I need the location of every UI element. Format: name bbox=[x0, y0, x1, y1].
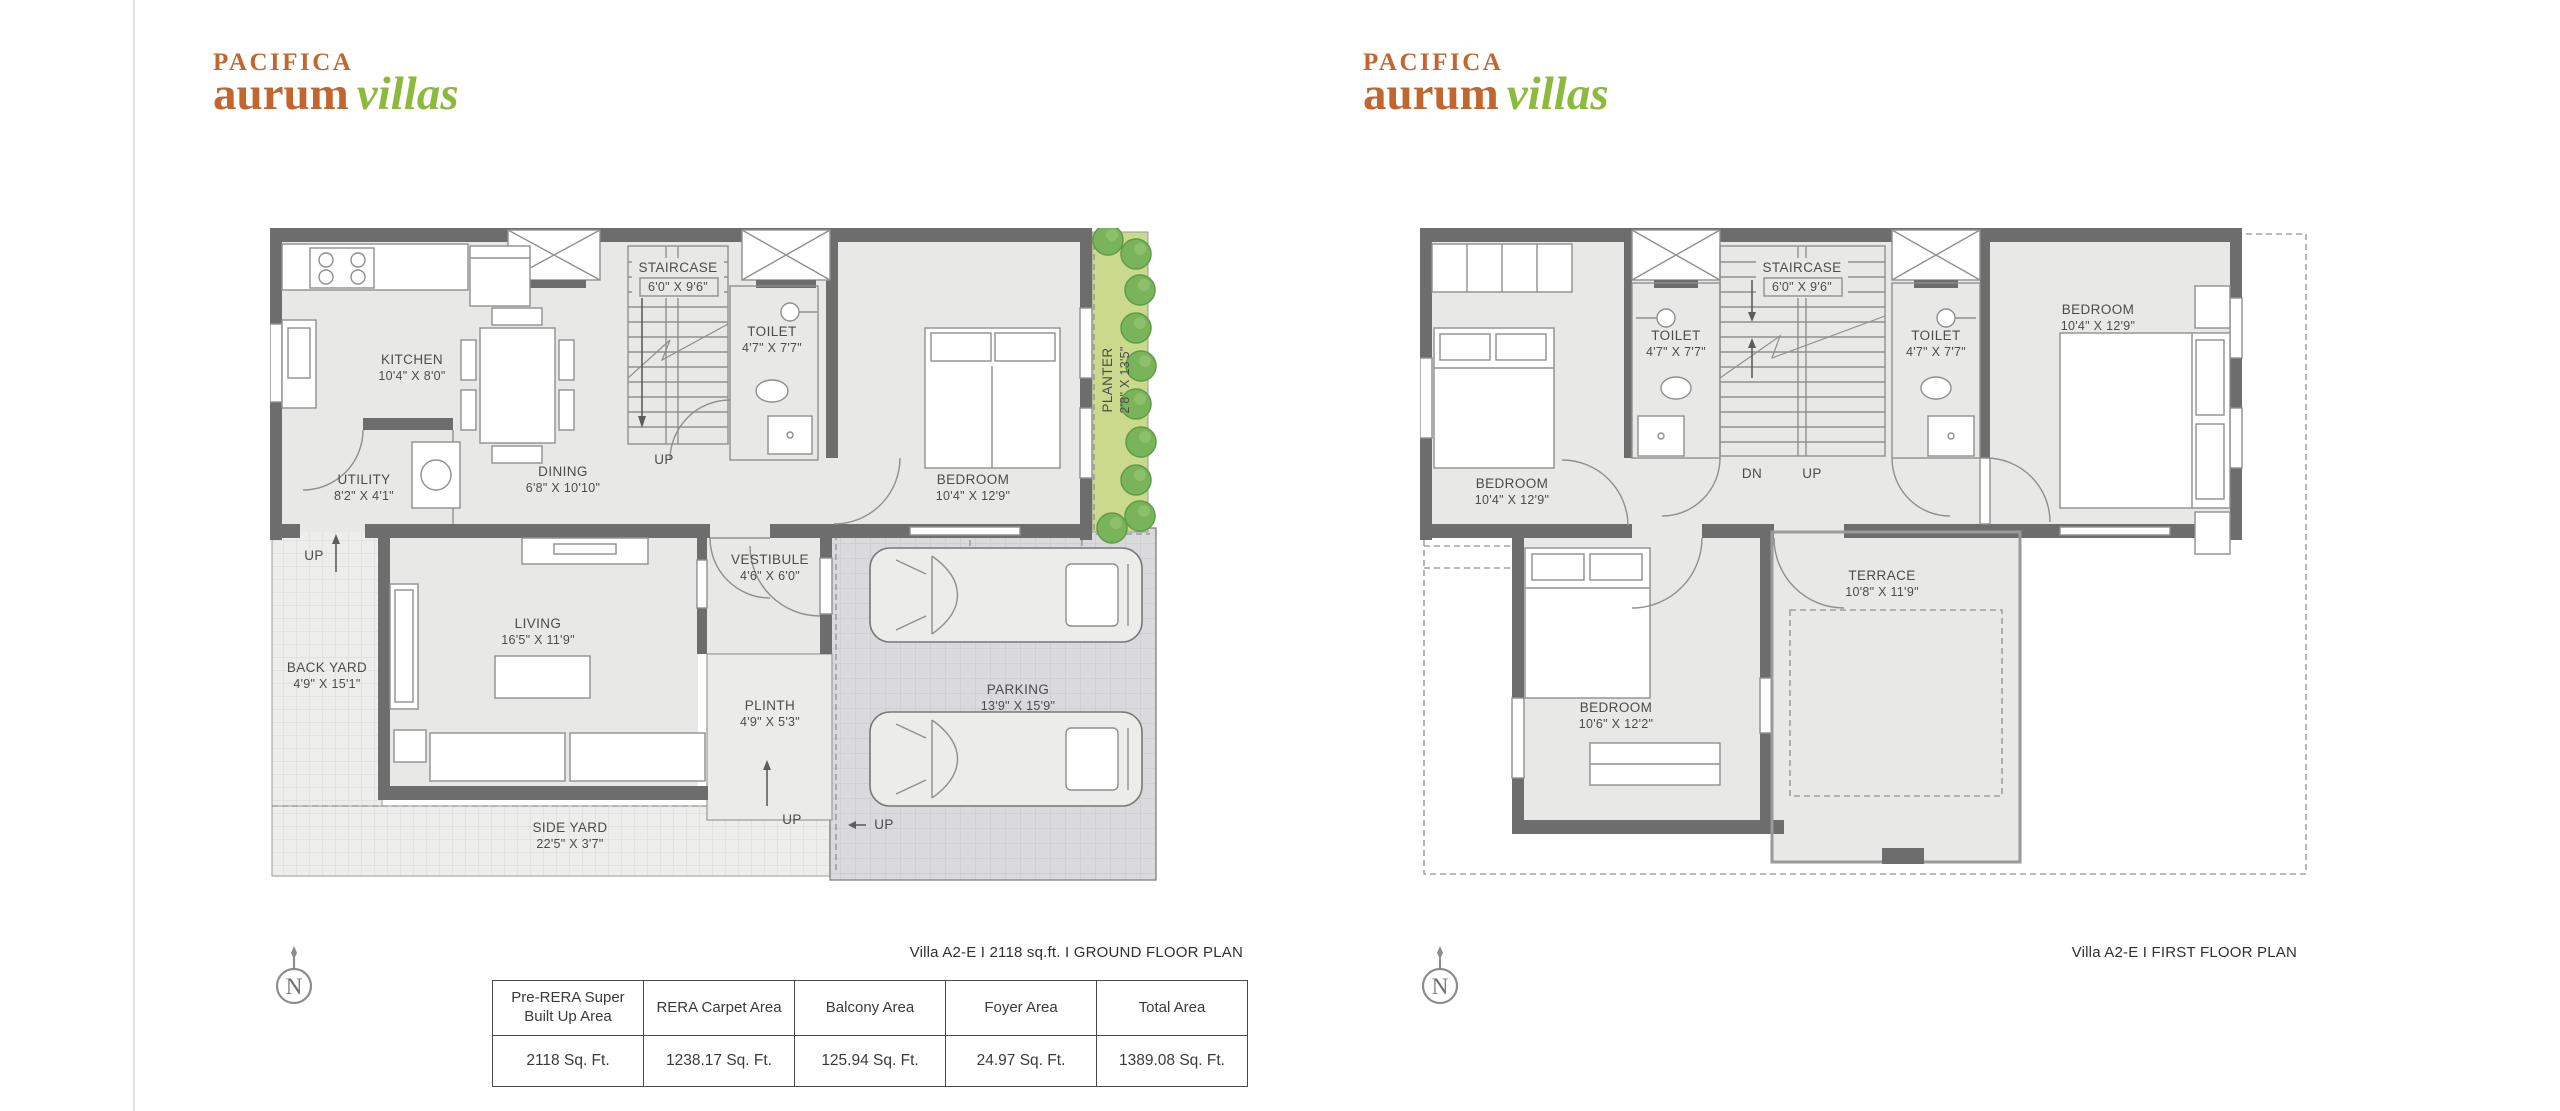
svg-text:6'0" X 9'6": 6'0" X 9'6" bbox=[1772, 280, 1832, 294]
room-label-staircase: STAIRCASE 6'0" X 9'6" bbox=[632, 258, 724, 298]
north-compass-icon: N bbox=[1412, 946, 1468, 1012]
svg-text:BACK YARD: BACK YARD bbox=[287, 660, 367, 675]
svg-text:TERRACE: TERRACE bbox=[1848, 568, 1915, 583]
brand-logo: PACIFICA aurumvillas bbox=[1363, 50, 1609, 118]
table-header-cell: Foyer Area bbox=[946, 981, 1097, 1036]
svg-text:6'0" X 9'6": 6'0" X 9'6" bbox=[648, 280, 708, 294]
svg-text:KITCHEN: KITCHEN bbox=[381, 352, 443, 367]
svg-text:VESTIBULE: VESTIBULE bbox=[731, 552, 809, 567]
svg-text:TOILET: TOILET bbox=[1651, 328, 1700, 343]
brand-logo: PACIFICA aurumvillas bbox=[213, 50, 459, 118]
svg-text:16'5" X 11'9": 16'5" X 11'9" bbox=[501, 633, 575, 647]
svg-text:PLANTER: PLANTER bbox=[1100, 347, 1115, 412]
stair-dn-label: DN bbox=[1742, 466, 1762, 481]
entry-up-label: UP bbox=[874, 817, 894, 832]
brand-word-main: aurum bbox=[1363, 68, 1499, 120]
table-value-cell: 125.94 Sq. Ft. bbox=[795, 1036, 946, 1087]
brand-wordmark: aurumvillas bbox=[1363, 71, 1609, 118]
plinth-up-label: UP bbox=[782, 812, 802, 827]
svg-text:BEDROOM: BEDROOM bbox=[1580, 700, 1653, 715]
brand-wordmark: aurumvillas bbox=[213, 71, 459, 118]
brand-word-main: aurum bbox=[213, 68, 349, 120]
svg-text:LIVING: LIVING bbox=[515, 616, 562, 631]
brochure-page: PACIFICA aurumvillas bbox=[0, 0, 2560, 1111]
stair-up-label: UP bbox=[1802, 466, 1822, 481]
svg-text:22'5" X 3'7": 22'5" X 3'7" bbox=[536, 837, 603, 851]
svg-text:10'4" X 12'9": 10'4" X 12'9" bbox=[936, 489, 1011, 503]
svg-text:BEDROOM: BEDROOM bbox=[937, 472, 1010, 487]
svg-text:N: N bbox=[286, 974, 303, 999]
svg-text:SIDE YARD: SIDE YARD bbox=[532, 820, 607, 835]
table-header-cell: RERA Carpet Area bbox=[644, 981, 795, 1036]
svg-text:10'8" X 11'9": 10'8" X 11'9" bbox=[1845, 585, 1919, 599]
table-header-cell: Total Area bbox=[1097, 981, 1248, 1036]
svg-text:DINING: DINING bbox=[538, 464, 588, 479]
svg-text:10'4" X 12'9": 10'4" X 12'9" bbox=[1475, 493, 1550, 507]
svg-text:13'9" X 15'9": 13'9" X 15'9" bbox=[981, 699, 1056, 713]
svg-text:PLINTH: PLINTH bbox=[745, 698, 795, 713]
area-table: Pre-RERA Super Built Up Area RERA Carpet… bbox=[492, 980, 1248, 1087]
svg-text:BEDROOM: BEDROOM bbox=[1476, 476, 1549, 491]
svg-text:10'4" X 8'0": 10'4" X 8'0" bbox=[378, 369, 445, 383]
table-value-cell: 2118 Sq. Ft. bbox=[493, 1036, 644, 1087]
svg-text:PARKING: PARKING bbox=[987, 682, 1050, 697]
table-value-cell: 1238.17 Sq. Ft. bbox=[644, 1036, 795, 1087]
first-floor-caption: Villa A2-E I FIRST FLOOR PLAN bbox=[1777, 944, 2297, 961]
north-compass-icon: N bbox=[266, 946, 322, 1012]
svg-text:2'8" X 13'5": 2'8" X 13'5" bbox=[1118, 346, 1132, 413]
table-value-cell: 1389.08 Sq. Ft. bbox=[1097, 1036, 1248, 1087]
svg-text:UTILITY: UTILITY bbox=[337, 472, 390, 487]
backyard-up-label: UP bbox=[304, 548, 324, 563]
plinth-slab bbox=[707, 654, 832, 820]
vestibule-slab bbox=[697, 532, 832, 654]
brand-word-accent: villas bbox=[357, 68, 459, 120]
svg-text:4'7" X 7'7": 4'7" X 7'7" bbox=[1646, 345, 1706, 359]
svg-text:STAIRCASE: STAIRCASE bbox=[638, 260, 717, 275]
table-header-cell: Balcony Area bbox=[795, 981, 946, 1036]
table-value-cell: 24.97 Sq. Ft. bbox=[946, 1036, 1097, 1087]
svg-text:10'4" X 12'9": 10'4" X 12'9" bbox=[2061, 319, 2136, 333]
svg-text:6'8" X 10'10": 6'8" X 10'10" bbox=[526, 481, 601, 495]
svg-text:4'7" X 7'7": 4'7" X 7'7" bbox=[1906, 345, 1966, 359]
svg-text:8'2" X 4'1": 8'2" X 4'1" bbox=[334, 489, 394, 503]
room-label-staircase: STAIRCASE 6'0" X 9'6" bbox=[1756, 258, 1848, 298]
area-table-header-row: Pre-RERA Super Built Up Area RERA Carpet… bbox=[493, 981, 1248, 1036]
svg-text:4'9" X 15'1": 4'9" X 15'1" bbox=[293, 677, 360, 691]
svg-text:4'7" X 7'7": 4'7" X 7'7" bbox=[742, 341, 802, 355]
first-floor-plan-drawing: BEDROOM 10'4" X 12'9" TOILET 4'7" X 7'7"… bbox=[1420, 228, 2330, 888]
svg-text:TOILET: TOILET bbox=[747, 324, 796, 339]
ground-floor-caption: Villa A2-E I 2118 sq.ft. I GROUND FLOOR … bbox=[723, 944, 1243, 961]
svg-text:TOILET: TOILET bbox=[1911, 328, 1960, 343]
svg-text:4'6" X 6'0": 4'6" X 6'0" bbox=[740, 569, 800, 583]
stair-up-label: UP bbox=[654, 452, 674, 467]
brand-word-accent: villas bbox=[1507, 68, 1609, 120]
page-edge-line bbox=[133, 0, 135, 1111]
area-table-value-row: 2118 Sq. Ft. 1238.17 Sq. Ft. 125.94 Sq. … bbox=[493, 1036, 1248, 1087]
table-header-cell: Pre-RERA Super Built Up Area bbox=[493, 981, 644, 1036]
svg-text:STAIRCASE: STAIRCASE bbox=[1762, 260, 1841, 275]
ground-floor-plan-drawing: KITCHEN 10'4" X 8'0" DINING 6'8" X 10'10… bbox=[270, 228, 1160, 888]
svg-text:10'6" X 12'2": 10'6" X 12'2" bbox=[1579, 717, 1654, 731]
svg-text:BEDROOM: BEDROOM bbox=[2062, 302, 2135, 317]
svg-text:4'9" X 5'3": 4'9" X 5'3" bbox=[740, 715, 800, 729]
svg-text:N: N bbox=[1432, 974, 1449, 999]
